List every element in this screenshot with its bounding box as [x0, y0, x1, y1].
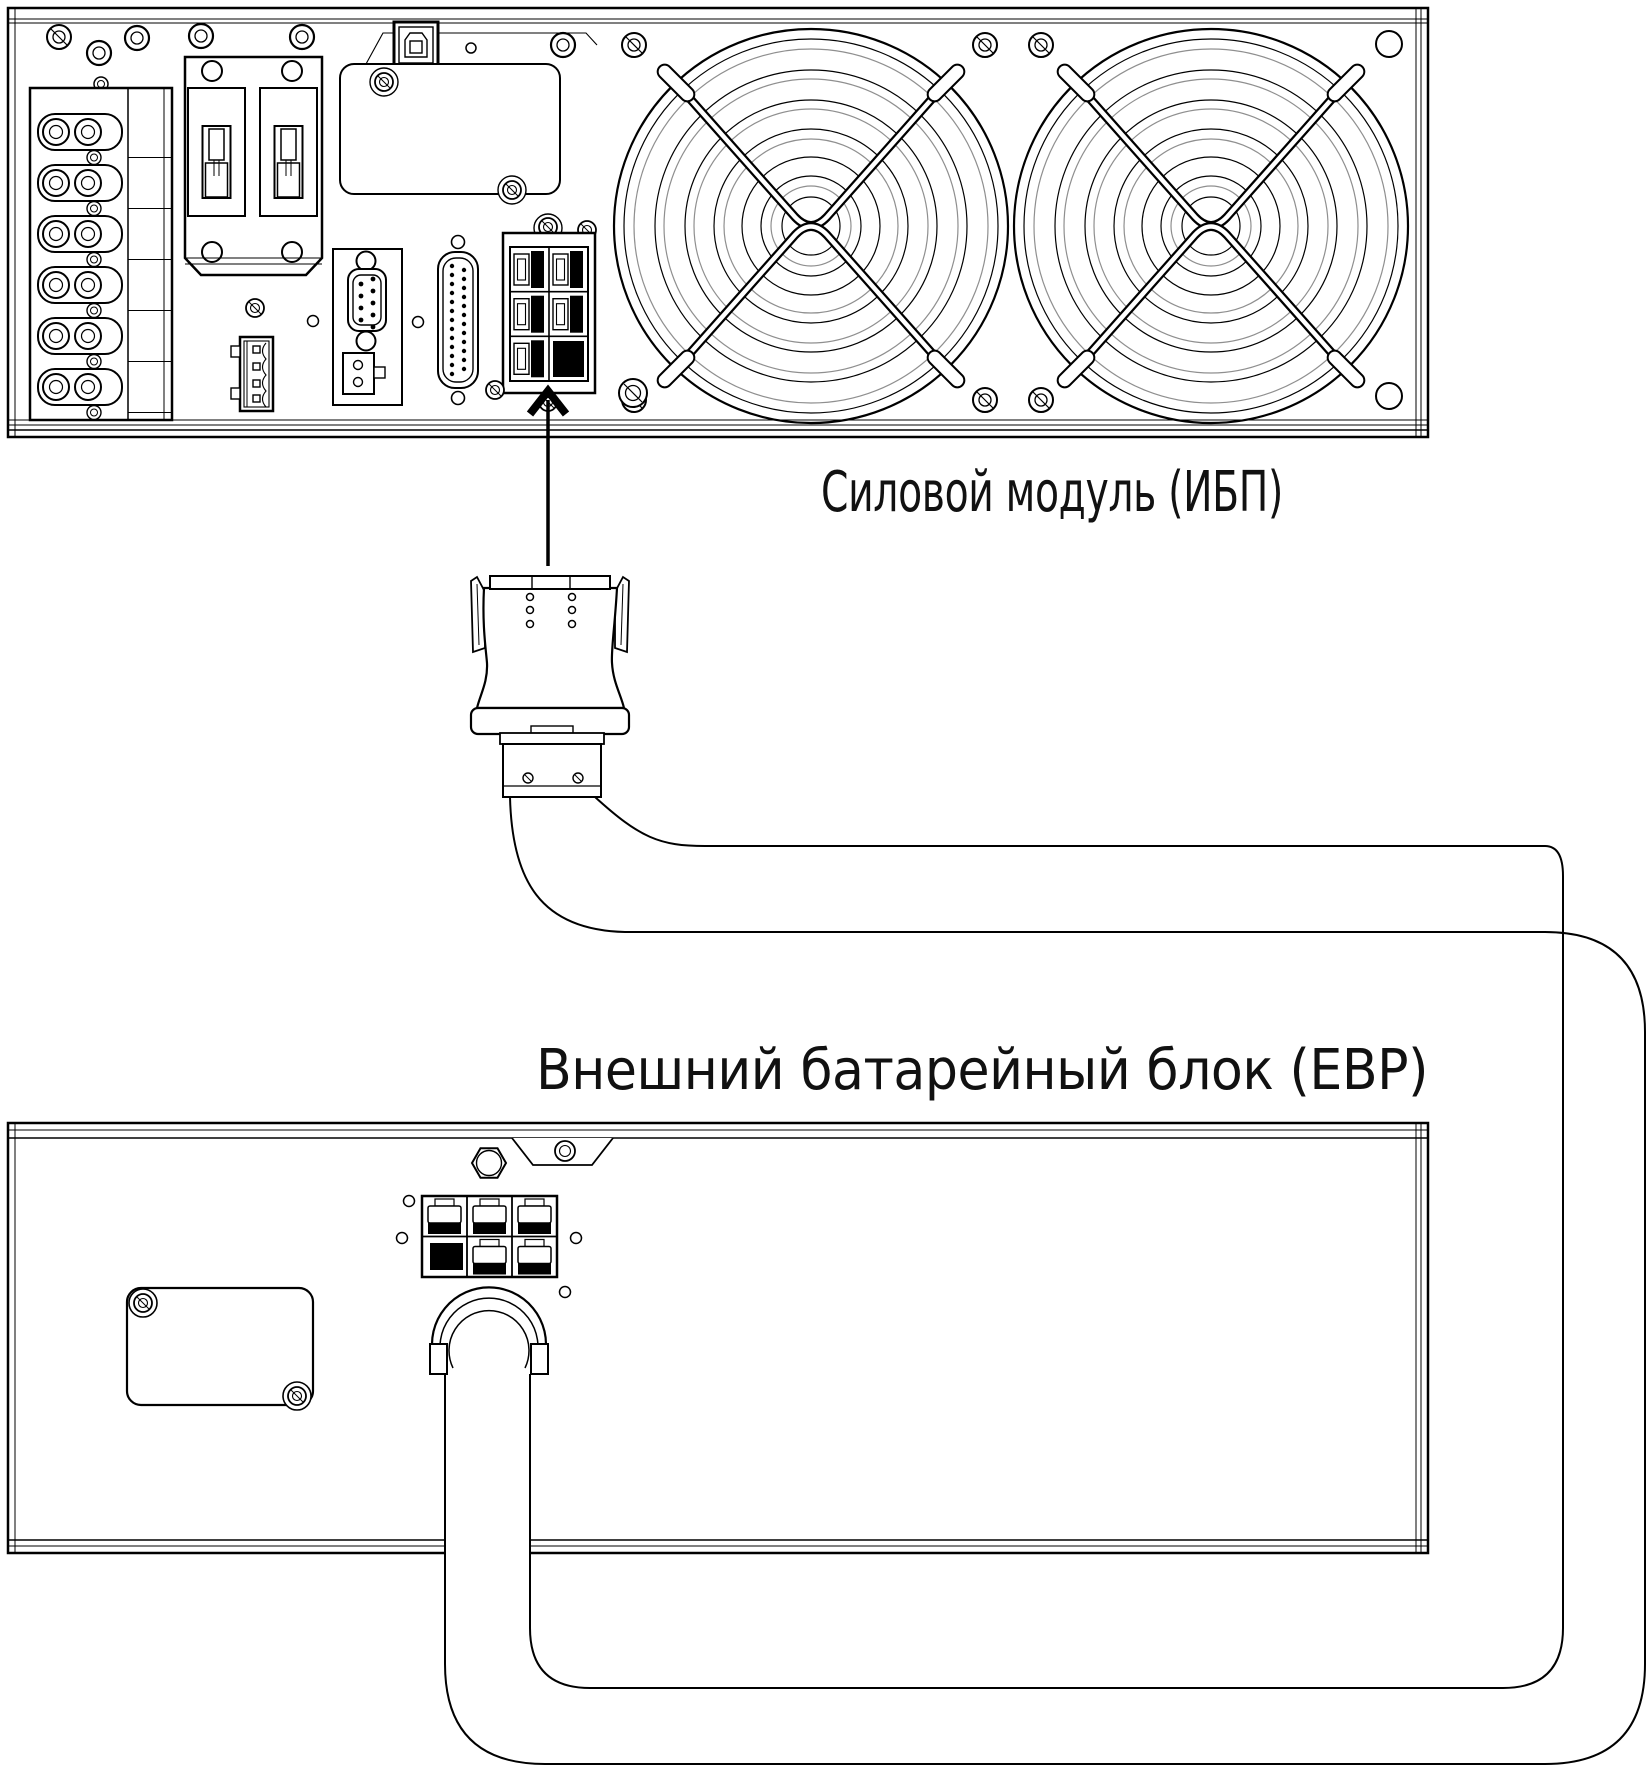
ebp-rear-panel: [8, 1123, 1428, 1553]
relay-output: [343, 353, 374, 394]
ups-label: Силовой модуль (ИБП): [821, 460, 1283, 525]
ups-rear-panel: [8, 8, 1428, 437]
battery-cable-plug[interactable]: [471, 576, 629, 797]
usb-b-port[interactable]: [394, 22, 438, 68]
ac-terminal-block: [30, 88, 172, 420]
slot-cover-plate: [340, 64, 560, 204]
diagram-canvas: Силовой модуль (ИБП) Внешний батарейный …: [0, 0, 1649, 1777]
ebp-cover-plate: [127, 1288, 313, 1410]
ups-ebp-connection-diagram: Силовой модуль (ИБП) Внешний батарейный …: [0, 0, 1649, 1777]
battery-connector-ebp[interactable]: [422, 1196, 557, 1277]
serial-db9-port[interactable]: [333, 249, 402, 405]
circuit-breakers[interactable]: [185, 57, 322, 275]
mounting-hole: [1376, 383, 1402, 409]
ebp-label: Внешний батарейный блок (EBP): [536, 1038, 1428, 1103]
cable-gland-nut: [472, 1148, 506, 1177]
mounting-hole: [1376, 31, 1402, 57]
parallel-db25-port[interactable]: [438, 236, 478, 405]
